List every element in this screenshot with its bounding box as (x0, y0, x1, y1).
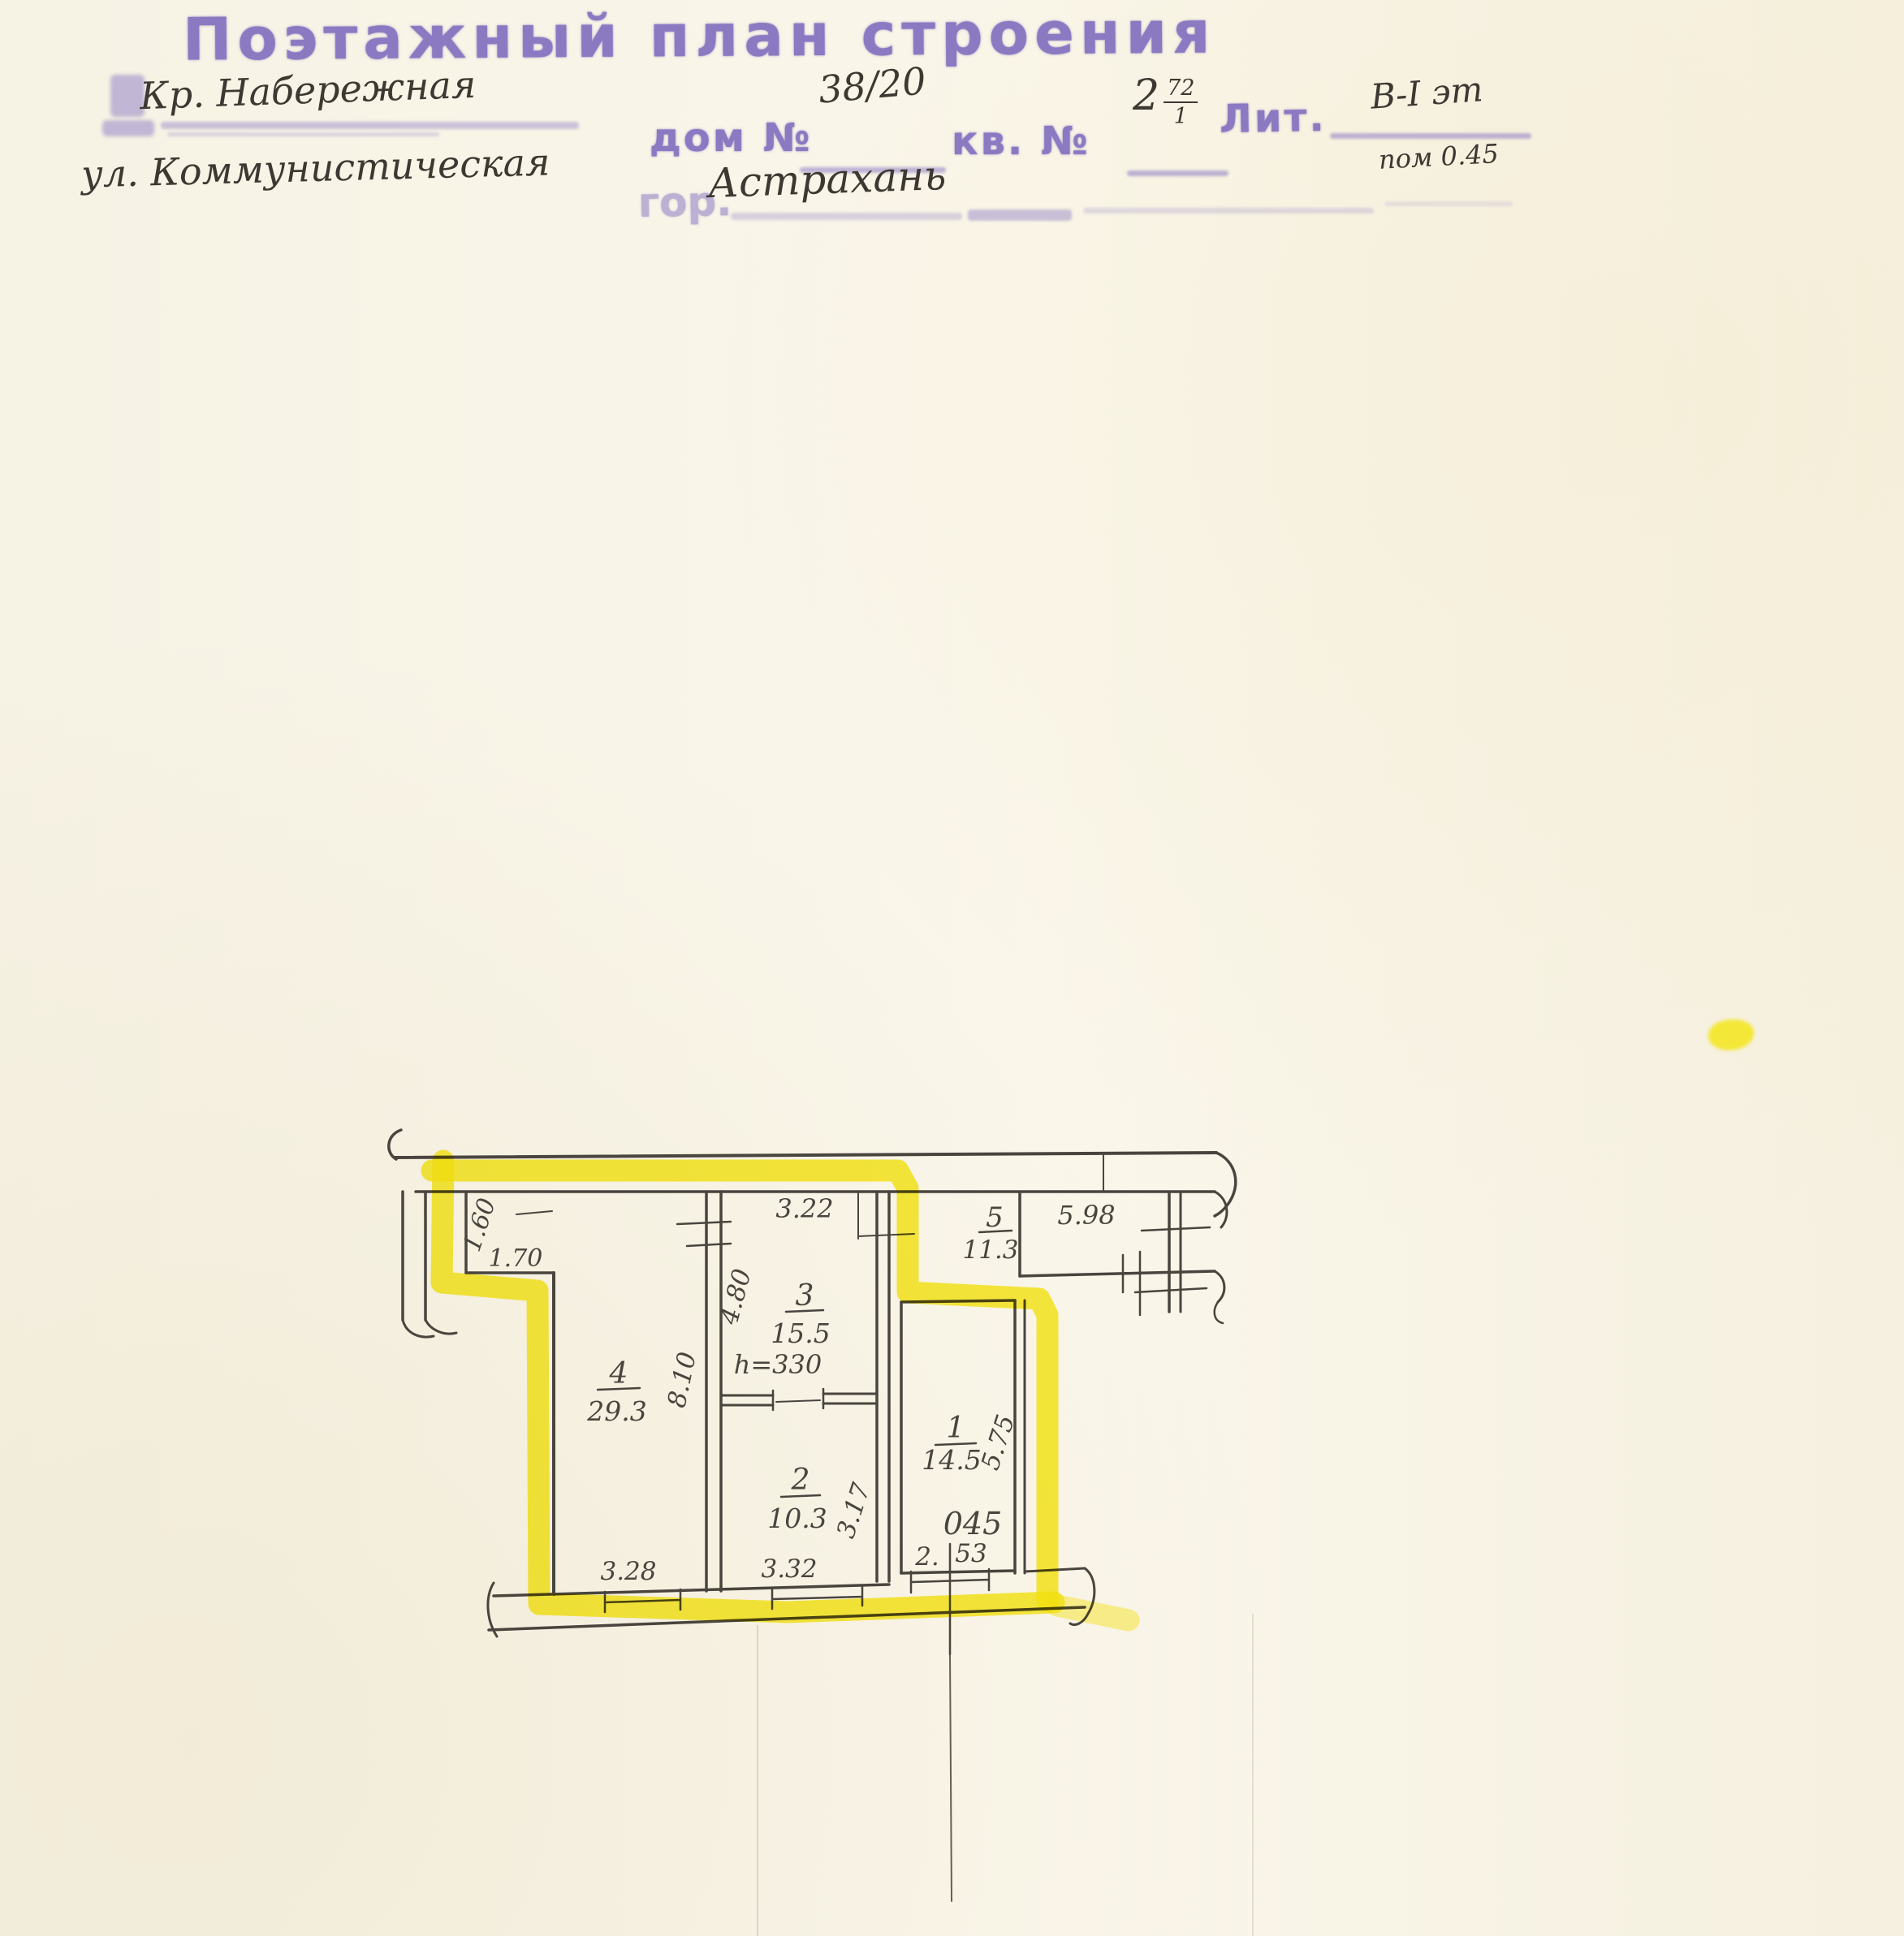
dim-alcove-width: 1.70 (489, 1244, 543, 1273)
apartment-number-handwritten: 2721 (1133, 71, 1198, 127)
stamp-underline (1127, 170, 1228, 176)
apartment-number-label: кв. № (952, 119, 1090, 164)
ceiling-height-note: h=330 (734, 1349, 822, 1380)
door-jamb (773, 1389, 823, 1410)
wall-break-mark (425, 1320, 456, 1334)
room-5-area: 11.3 (962, 1235, 1018, 1265)
room-5-number: 5 (986, 1201, 1004, 1234)
room-2-area: 10.3 (767, 1503, 827, 1534)
street-name-2-handwritten: ул. Коммунистическая (80, 140, 550, 196)
apartment-number-fraction: 721 (1164, 77, 1198, 127)
stamp-underline (167, 132, 439, 136)
stamp-underline (1330, 133, 1531, 139)
room-1-number: 1 (947, 1412, 965, 1445)
dim-room2-depth: 3.17 (831, 1479, 877, 1541)
unit-number-mark: 045 (943, 1506, 1003, 1541)
stamp-underline (1083, 208, 1374, 213)
premise-note-handwritten: пом 0.45 (1378, 138, 1500, 175)
door-opening-mark (687, 1244, 731, 1246)
dim-room2-width: 3.32 (761, 1554, 817, 1584)
wall-break-mark (1215, 1271, 1224, 1302)
stamp-underline (731, 213, 962, 220)
paper-crease (1252, 1614, 1254, 1936)
apartment-number-value: 2 (1133, 71, 1159, 120)
section-line (950, 1654, 952, 1901)
wall-break-mark (403, 1320, 434, 1337)
room-3-number: 3 (796, 1279, 814, 1313)
dim-room3-width: 3.22 (775, 1193, 833, 1224)
stamp-underline (161, 122, 579, 129)
dim-room4-depth: 8.10 (662, 1349, 702, 1410)
stamp-underline (968, 209, 1072, 221)
room-4-area: 29.3 (586, 1395, 646, 1427)
fraction-numerator: 72 (1164, 77, 1198, 103)
dim-room4-width: 3.28 (600, 1557, 656, 1586)
liter-handwritten: В-I эт (1369, 69, 1483, 117)
door-opening-mark (677, 1222, 731, 1224)
fraction-denominator: 1 (1164, 103, 1198, 127)
dim-room1-width-a: 2. (914, 1542, 939, 1572)
room-2-number: 2 (791, 1464, 810, 1497)
room-4-number: 4 (609, 1357, 628, 1391)
stamp-underline (1384, 201, 1513, 206)
wall-break-mark (1215, 1302, 1223, 1323)
room-3-area: 15.5 (771, 1317, 830, 1349)
door-threshold (776, 1400, 820, 1402)
dim-room1-width-b: 53 (955, 1539, 987, 1568)
city-handwritten: Астрахань (707, 152, 947, 207)
dimension-tick (516, 1211, 552, 1214)
floor-plan-drawing: 4 29.3 3 15.5 2 10.3 1 14.5 5 11.3 1.60 … (365, 1120, 1275, 1936)
dim-room5-width: 5.98 (1057, 1200, 1115, 1231)
house-number-label: дом № (650, 115, 812, 161)
dimension-tick (1135, 1288, 1207, 1292)
stamp-smudge (102, 120, 154, 136)
highlighter-smudge (1708, 1020, 1754, 1050)
room-1-area: 14.5 (922, 1444, 981, 1476)
liter-label: Лит. (1220, 95, 1328, 142)
house-number-handwritten: 38/20 (817, 58, 928, 111)
paper-crease (757, 1625, 758, 1936)
dimension-tick (1142, 1227, 1210, 1231)
scanned-floor-plan-sheet: Поэтажный план строения Кр. Набережная д… (0, 0, 1904, 1936)
page-title: Поэтажный план строения (183, 0, 1216, 73)
wall-break-mark (389, 1130, 401, 1159)
